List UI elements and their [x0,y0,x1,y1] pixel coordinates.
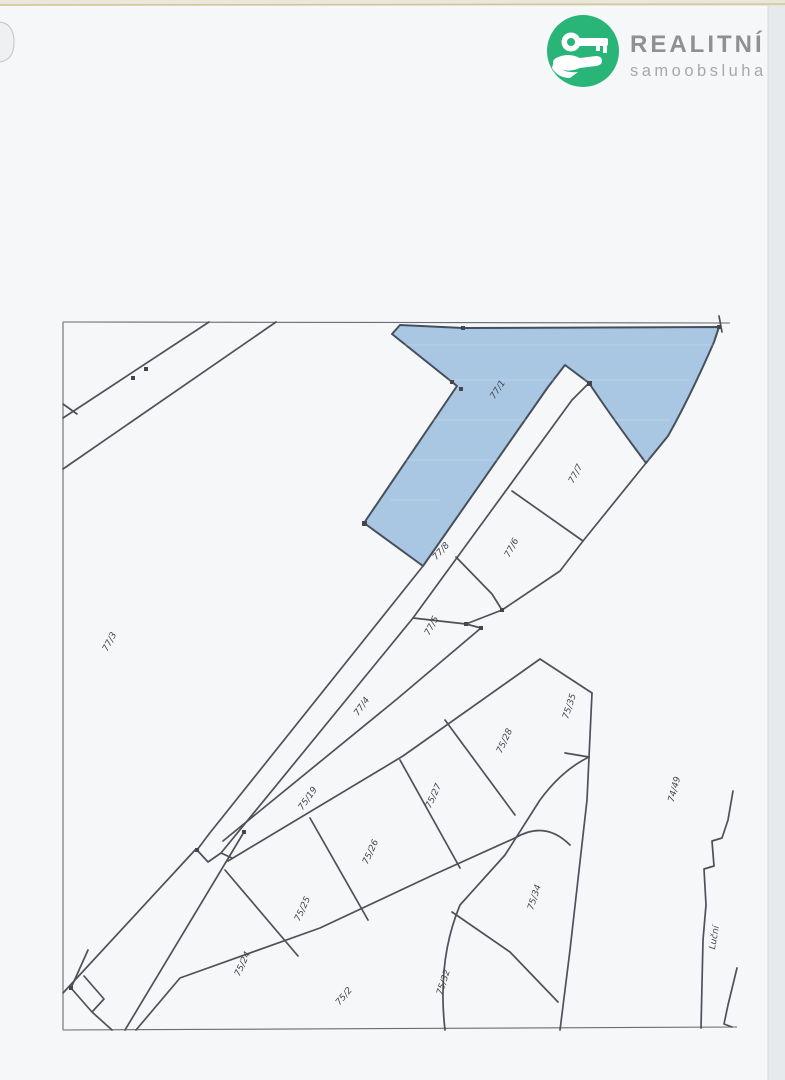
parcel-label: 75/35 [561,692,579,720]
boundary-line [512,491,583,541]
scanned-page: 77/177/377/777/677/877/577/475/1975/3575… [0,0,785,1080]
map-corner-tick [719,316,722,332]
page-right-shadow [768,6,785,1080]
boundary-line [310,818,368,920]
parcel-label: Luční [707,923,722,950]
boundary-zigzag [466,610,502,628]
parcel-label: 77/4 [352,695,372,718]
street-jagged-line [701,791,733,1028]
parcel-label: 75/26 [361,838,381,866]
parcel-label: 75/34 [526,883,544,911]
parcel-label: 75/32 [435,968,453,996]
page-corner-curl [0,22,14,62]
boundary-line [228,659,540,861]
logo-circle [547,15,619,87]
road-nw-edge [136,830,570,1030]
parcel-label: 74/49 [667,775,683,803]
flag-parcel-edge [572,383,589,400]
parcel-label: 75/25 [293,895,313,923]
cadastral-map: 77/177/377/777/677/877/577/475/1975/3575… [0,0,785,1080]
boundary-line [225,870,298,956]
boundary-line [223,628,481,841]
map-border-top [63,322,730,323]
logo: REALITNÍ samoobsluha [547,15,767,87]
boundary-line [565,753,589,757]
boundary-line [540,659,592,693]
parcel-77-1-highlighted [364,325,719,566]
lane-se-edge [221,400,572,853]
page-top-edge-line [0,4,785,5]
boundary-line [63,322,209,418]
boundary-line [63,849,196,993]
boundary-line [452,912,558,1002]
logo-brand-text: REALITNÍ [630,30,765,58]
boundary-line [400,760,460,868]
parcel-label: 77/6 [503,537,521,560]
map-border-bottom [63,1027,737,1030]
highlighted-parcel-shape [364,325,719,566]
parcel-label: 75/27 [424,782,444,810]
road-se-edge [443,757,589,1030]
parcel-label: 75/2 [334,986,355,1008]
boundary-line [63,322,276,469]
east-boundary [560,693,592,1030]
parcel-label: 77/7 [567,463,585,486]
street-jagged-line-2 [724,968,737,1027]
parcel-label: 77/5 [423,615,441,638]
logo-subtitle-text: samoobsluha [630,62,767,80]
boundary-line [456,557,502,610]
parcel-label: 75/24 [233,950,253,978]
parcel-label: 77/3 [101,631,119,654]
parcel-label: 75/28 [495,727,515,755]
